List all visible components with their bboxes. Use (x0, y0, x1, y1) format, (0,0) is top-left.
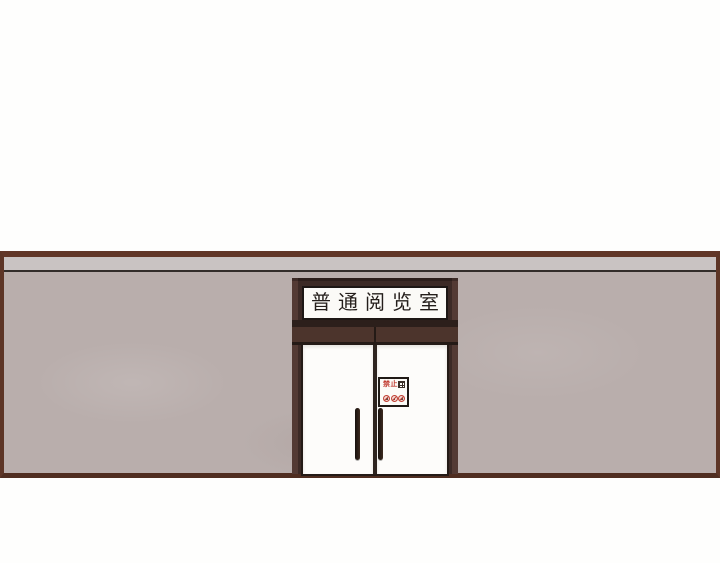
right-door (377, 345, 447, 474)
prohibition-icon (391, 395, 398, 402)
entrance-doorway: 普通阅览室 禁止 (292, 278, 458, 474)
door-gap (373, 345, 377, 474)
double-doors: 禁止 (303, 345, 447, 474)
schedule-grid-icon (398, 381, 405, 388)
prohibition-icon (398, 395, 405, 402)
left-door-handle (355, 408, 360, 460)
right-door-handle (378, 408, 383, 460)
prohibition-icon (383, 395, 390, 402)
prohibition-notice-header: 禁止 (383, 381, 405, 388)
transom-divider (374, 327, 376, 345)
door-transom (292, 320, 458, 345)
wall-cornice (4, 257, 716, 272)
room-nameplate: 普通阅览室 (302, 286, 448, 320)
left-door (303, 345, 373, 474)
prohibition-notice-title: 禁止 (383, 381, 398, 388)
prohibition-notice-icons (383, 395, 405, 402)
room-nameplate-text: 普通阅览室 (304, 293, 446, 313)
prohibition-notice: 禁止 (378, 377, 409, 407)
